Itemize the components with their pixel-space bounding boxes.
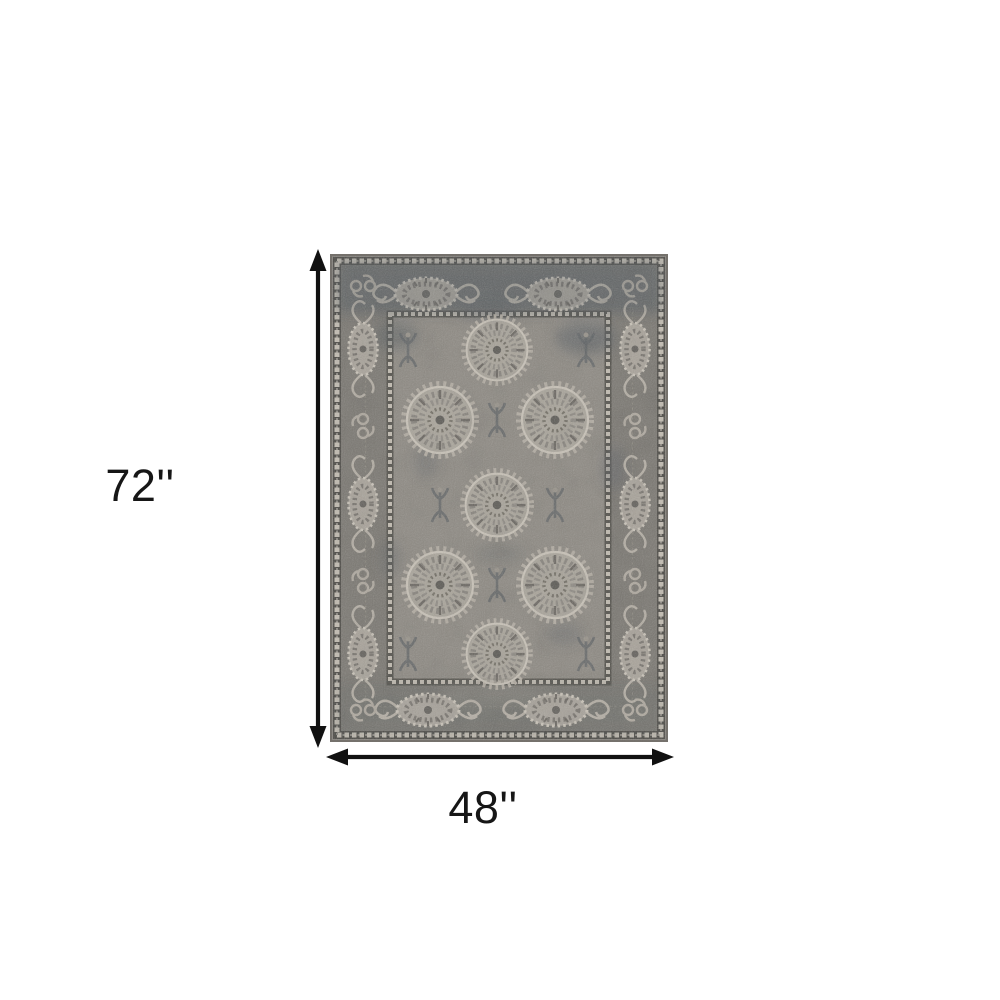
width-dimension-label: 48'' <box>421 782 545 834</box>
rug-texture-grain <box>330 254 668 742</box>
arrowhead-left-icon <box>326 749 348 766</box>
rug-image <box>330 254 668 742</box>
product-dimension-diagram: 72'' 48'' <box>0 0 1000 1000</box>
arrowhead-up-icon <box>310 249 327 271</box>
rug-illustration <box>330 254 668 742</box>
arrowhead-down-icon <box>310 726 327 748</box>
height-arrow <box>310 249 327 748</box>
height-dimension-label: 72'' <box>78 460 202 512</box>
width-arrow <box>326 749 674 766</box>
arrowhead-right-icon <box>652 749 674 766</box>
